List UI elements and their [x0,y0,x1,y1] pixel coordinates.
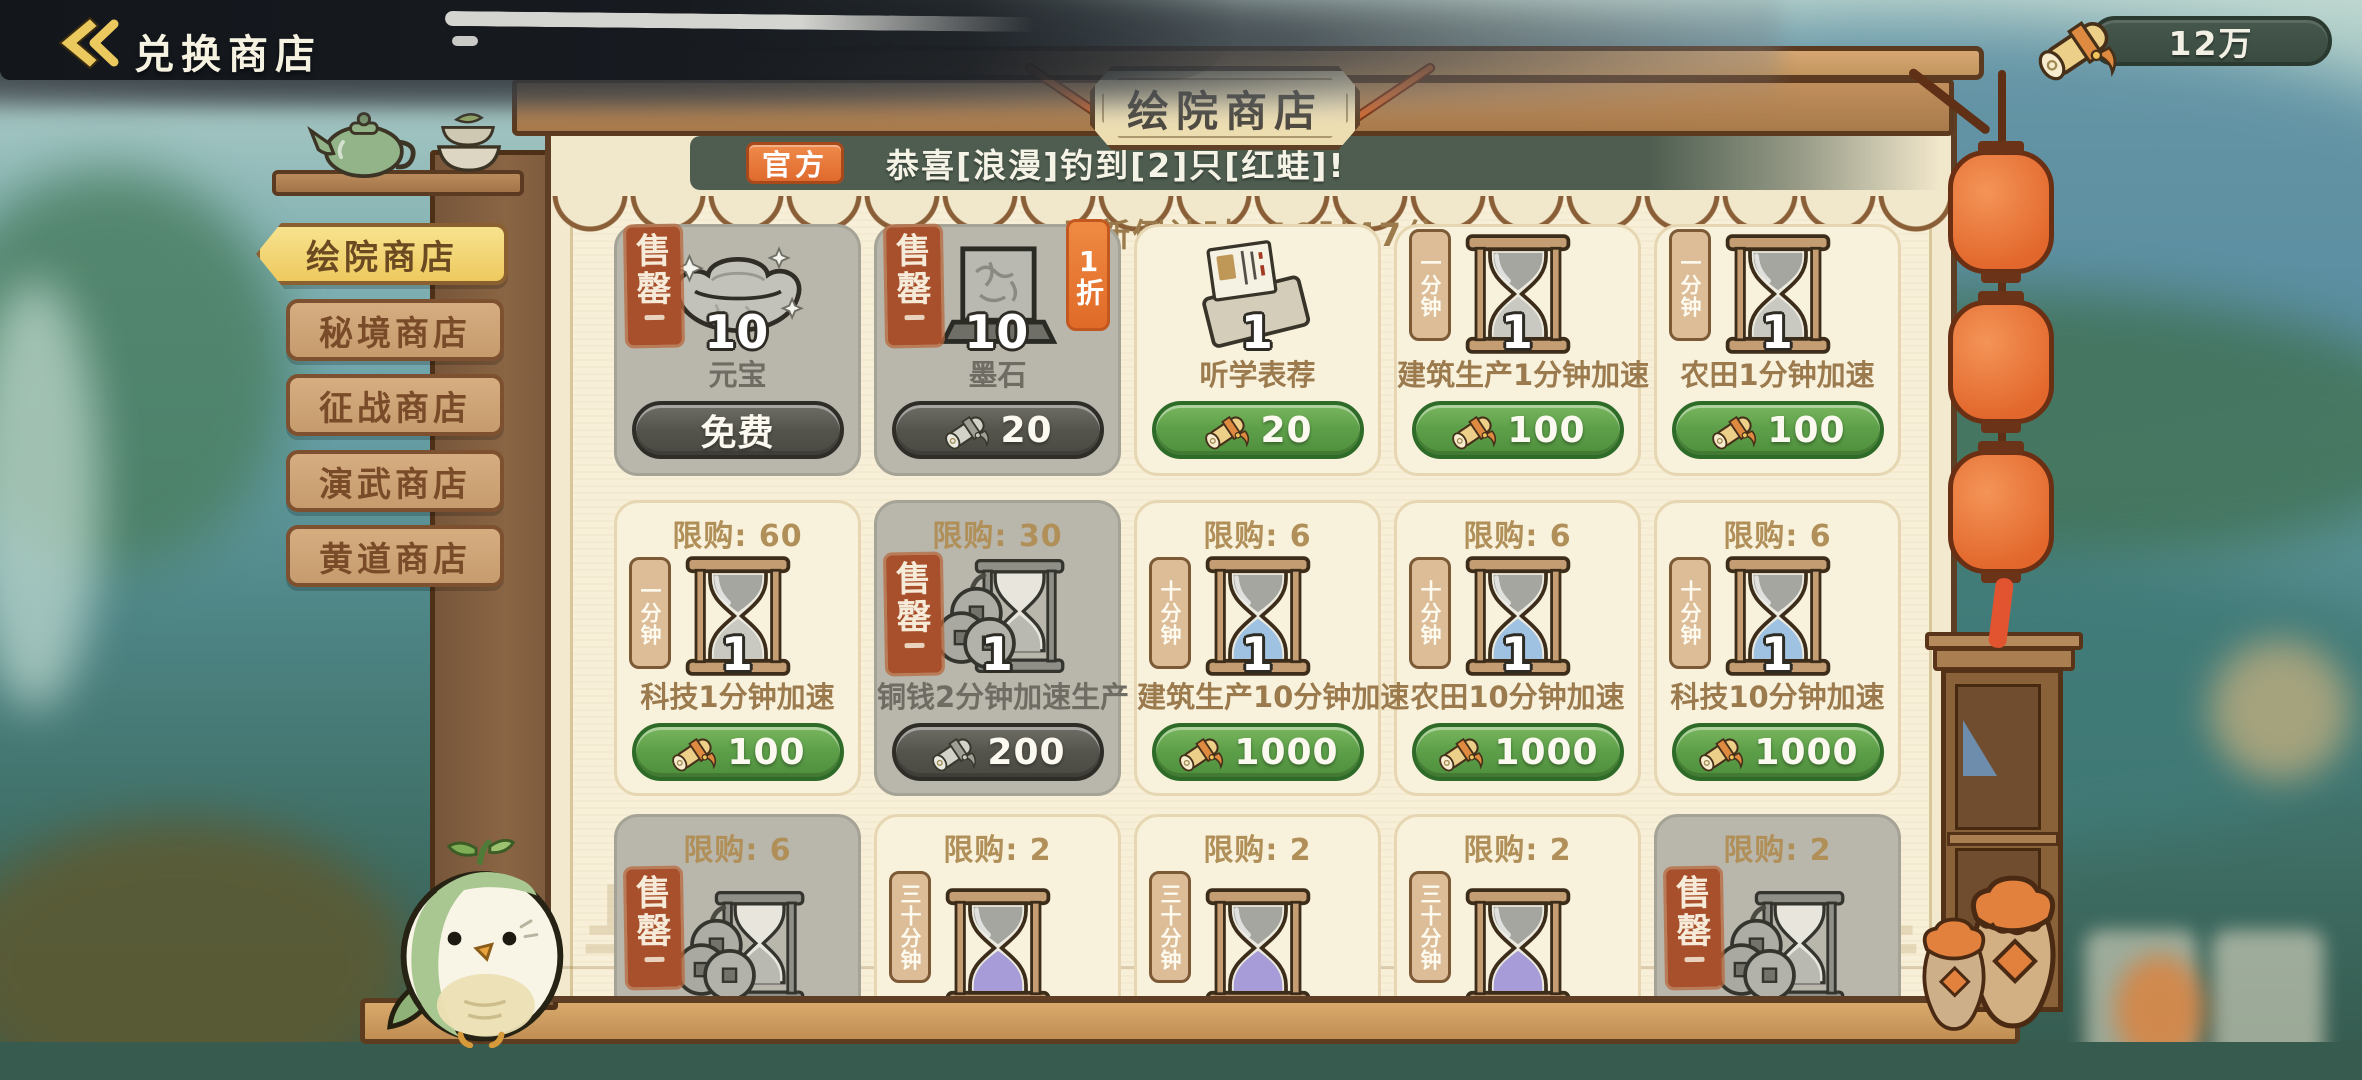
shop-item-card[interactable]: 10售罄1折墨石 20 [874,224,1121,476]
time-tag: 十分钟 [1149,557,1191,669]
lantern-rod [1998,70,2006,610]
price-value: 100 [1507,410,1585,451]
buy-button[interactable]: 20 [892,401,1104,459]
official-badge: 官方 [746,142,844,184]
time-tag: 一分钟 [1409,229,1451,341]
item-icon-zone: 10售罄 [617,227,858,355]
item-quantity: 1 [1241,627,1273,681]
scroll-currency-icon [1436,726,1488,778]
item-quantity: 10 [964,305,1028,359]
price-value: 200 [987,732,1065,773]
hourglass-icon [1202,887,1314,1002]
shop-item-card[interactable]: 限购: 30 1售罄铜钱2分钟加速生产 200 [874,500,1121,796]
limit-label: 限购: 2 [1137,825,1378,869]
scroll-currency-icon [1176,726,1228,778]
price-value: 100 [727,732,805,773]
item-icon-zone: 售罄 [1657,869,1898,1002]
limit-label: 限购: 6 [617,825,858,869]
page-title: 兑换商店 [134,22,322,80]
back-button[interactable] [48,14,124,72]
lantern-icon [1948,300,2054,424]
item-quantity: 1 [1761,627,1793,681]
buy-button[interactable]: 1000 [1152,723,1364,781]
shop-tab-3[interactable]: 征战商店 [286,374,504,436]
buy-button[interactable]: 100 [1412,401,1624,459]
item-icon-zone: 十分钟 1 [1397,555,1638,677]
shelf-divider [1947,832,2059,846]
item-name: 农田10分钟加速 [1397,677,1638,721]
shop-tab-2[interactable]: 秘境商店 [286,299,504,361]
ground-strip [0,1042,2362,1080]
shop-item-card[interactable]: 限购: 6十分钟 1农田10分钟加速 1000 [1394,500,1641,796]
buy-button[interactable]: 免费 [632,401,844,459]
item-quantity: 1 [1241,305,1273,359]
item-name: 铜钱2分钟加速生产 [877,677,1118,721]
limit-label: 限购: 6 [1657,511,1898,555]
lantern-icon [1948,150,2054,274]
item-grid[interactable]: 10售罄元宝免费 10售罄1折墨石 20 1听学表荐 20一分钟 [551,114,1951,996]
item-icon-zone: 三十分钟 [1397,869,1638,1002]
item-icon-zone: 三十分钟 [1137,869,1378,1002]
shop-tab-1[interactable]: 绘院商店 [256,223,508,285]
item-name: 元宝 [617,355,858,399]
time-tag: 十分钟 [1669,557,1711,669]
time-tag: 一分钟 [629,557,671,669]
time-tag: 十分钟 [1409,557,1451,669]
scroll-currency-icon [1696,726,1748,778]
scroll-currency-icon [1202,404,1254,456]
bg-waterfall-left [0,280,100,710]
floor-ledge [360,998,2020,1044]
item-quantity: 1 [981,627,1013,681]
shop-item-card[interactable]: 限购: 2三十分钟 [1394,814,1641,1002]
shop-item-card[interactable]: 限购: 2 售罄 [1654,814,1901,1002]
hourglass-icon [942,887,1054,1002]
item-name: 科技10分钟加速 [1657,677,1898,721]
time-tag: 三十分钟 [1409,871,1451,983]
shop-item-card[interactable]: 1听学表荐 20 [1134,224,1381,476]
shop-window: 刷新倒计时: 19时47分 10售罄元宝免费 10售罄1折墨石 20 [545,108,1957,1002]
shop-item-card[interactable]: 一分钟 1建筑生产1分钟加速 100 [1394,224,1641,476]
ink-white-tick [452,36,478,46]
item-name: 墨石 [877,355,1118,399]
shop-item-card[interactable]: 限购: 2三十分钟 [1134,814,1381,1002]
buy-button[interactable]: 100 [1672,401,1884,459]
item-name: 建筑生产1分钟加速 [1397,355,1638,399]
shop-tab-4[interactable]: 演武商店 [286,450,504,512]
price-value: 20 [1000,410,1052,451]
sold-out-stamp: 售罄 [886,227,942,346]
price-value: 免费 [700,404,774,456]
currency-amount: 12万 [2169,17,2254,65]
limit-label: 限购: 30 [877,511,1118,555]
shelf-item [1963,720,1997,776]
bowls-icon [428,108,510,178]
exchange-shop-screen: 绘院商店秘境商店征战商店演武商店黄道商店 刷新倒计时: 19时47分 10售罄元… [0,0,2362,1080]
time-tag: 三十分钟 [889,871,931,983]
shop-item-card[interactable]: 限购: 6十分钟 1建筑生产10分钟加速 1000 [1134,500,1381,796]
item-icon-zone: 一分钟 1 [617,555,858,677]
item-name: 科技1分钟加速 [617,677,858,721]
bird-mascot [382,836,578,1048]
item-name: 建筑生产10分钟加速 [1137,677,1378,721]
scroll-currency-icon [1709,404,1761,456]
item-quantity: 1 [1761,305,1793,359]
bg-trees-left [0,170,290,570]
shop-item-card[interactable]: 限购: 6 售罄 [614,814,861,1002]
item-icon-zone: 1售罄 [877,555,1118,677]
shop-tab-5[interactable]: 黄道商店 [286,525,504,587]
scroll-currency-icon [942,404,994,456]
limit-label: 限购: 2 [877,825,1118,869]
item-name: 农田1分钟加速 [1657,355,1898,399]
sold-out-stamp: 售罄 [626,869,682,988]
limit-label: 限购: 2 [1657,825,1898,869]
shop-item-card[interactable]: 一分钟 1农田1分钟加速 100 [1654,224,1901,476]
item-icon-zone: 三十分钟 [877,869,1118,1002]
shop-item-card[interactable]: 限购: 60一分钟 1科技1分钟加速 100 [614,500,861,796]
price-value: 1000 [1754,732,1858,773]
item-quantity: 1 [1501,627,1533,681]
limit-label: 限购: 6 [1397,511,1638,555]
clay-pot-small [1908,912,2000,1032]
price-value: 100 [1767,410,1845,451]
sold-out-stamp: 售罄 [626,227,682,346]
currency-pill[interactable]: 12万 [2090,16,2332,66]
shop-item-card[interactable]: 10售罄元宝免费 [614,224,861,476]
bg-dark-corner [0,820,410,1080]
scroll-currency-icon [1449,404,1501,456]
discount-ribbon: 1折 [1066,219,1110,331]
lantern-icon [1948,450,2054,574]
buy-button[interactable]: 1000 [1412,723,1624,781]
buy-button[interactable]: 200 [892,723,1104,781]
buy-button[interactable]: 20 [1152,401,1364,459]
hourglass-icon [1462,887,1574,1002]
teapot-icon [300,104,424,178]
time-tag: 三十分钟 [1149,871,1191,983]
limit-label: 限购: 6 [1137,511,1378,555]
sold-out-stamp: 售罄 [886,555,942,674]
coins-icon [1707,887,1849,1002]
shop-item-card[interactable]: 限购: 6十分钟 1科技10分钟加速 1000 [1654,500,1901,796]
limit-label: 限购: 60 [617,511,858,555]
item-quantity: 1 [721,627,753,681]
time-tag: 一分钟 [1669,229,1711,341]
item-icon-zone: 十分钟 1 [1137,555,1378,677]
price-value: 20 [1260,410,1312,451]
buy-button[interactable]: 100 [632,723,844,781]
item-icon-zone: 售罄 [617,869,858,1002]
buy-button[interactable]: 1000 [1672,723,1884,781]
limit-label: 限购: 2 [1397,825,1638,869]
price-value: 1000 [1234,732,1338,773]
item-quantity: 10 [704,305,768,359]
item-icon-zone: 十分钟 1 [1657,555,1898,677]
sold-out-stamp: 售罄 [1666,869,1722,988]
item-icon-zone: 1 [1137,227,1378,355]
scroll-currency-icon [929,726,981,778]
item-icon-zone: 一分钟 1 [1397,227,1638,355]
shop-item-card[interactable]: 限购: 2三十分钟 [874,814,1121,1002]
item-name: 听学表荐 [1137,355,1378,399]
item-quantity: 1 [1501,305,1533,359]
bg-orange-blur-high [2210,640,2350,780]
lantern-string [1946,70,2066,690]
scroll-currency-icon [669,726,721,778]
scroll-currency-icon [2032,0,2126,92]
coins-icon [667,887,809,1002]
price-value: 1000 [1494,732,1598,773]
item-icon-zone: 一分钟 1 [1657,227,1898,355]
item-icon-zone: 10售罄1折 [877,227,1118,355]
